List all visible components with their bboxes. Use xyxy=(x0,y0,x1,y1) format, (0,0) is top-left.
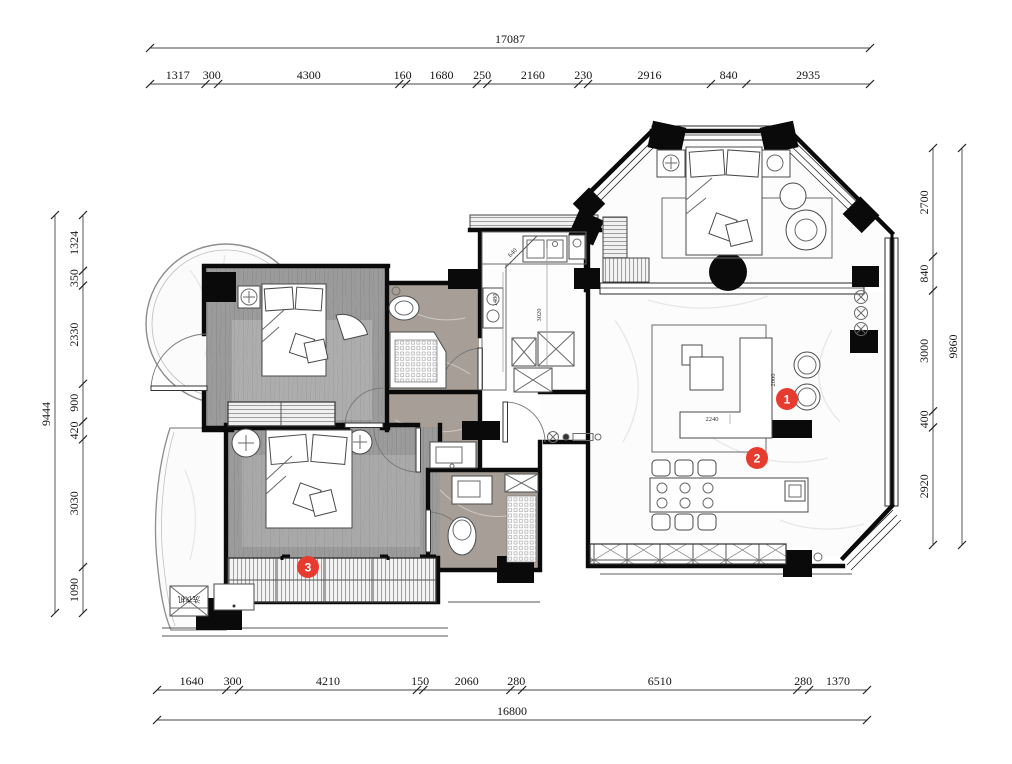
dim-counter: 1480 xyxy=(492,294,499,307)
powder-room-fixtures xyxy=(430,442,476,468)
dimension-label: 420 xyxy=(67,422,81,440)
dimension-label: 3030 xyxy=(67,491,81,515)
dimension-label: 2700 xyxy=(917,190,931,214)
dimension-label: 2916 xyxy=(638,68,662,82)
dimension-label: 2330 xyxy=(67,323,81,347)
dimension-label: 300 xyxy=(224,674,242,688)
dimension-label: 160 xyxy=(394,68,412,82)
washer-label: 洗衣机 xyxy=(177,595,200,605)
dim-sofa-depth: 2000 xyxy=(770,374,777,387)
dimension-label: 1370 xyxy=(826,674,850,688)
floor-plan-drawing: 洗衣机 2240 2000 3020 1480 640 1 2 3 131730… xyxy=(0,0,1012,764)
dimension-label: 2935 xyxy=(796,68,820,82)
floor-plan-page: 洗衣机 2240 2000 3020 1480 640 1 2 3 131730… xyxy=(0,0,1012,764)
dimension-label: 230 xyxy=(574,68,592,82)
dimension-label: 17087 xyxy=(495,32,525,46)
dimension-label: 280 xyxy=(507,674,525,688)
dimension-label: 300 xyxy=(203,68,221,82)
dimension-label: 3000 xyxy=(917,339,931,363)
dimension-label: 1680 xyxy=(429,68,453,82)
dimension-label: 2060 xyxy=(455,674,479,688)
dimension-label: 2920 xyxy=(917,474,931,498)
dimension-label: 250 xyxy=(473,68,491,82)
plan-marker-2[interactable]: 2 xyxy=(746,447,768,469)
svg-text:3: 3 xyxy=(305,561,312,575)
dimension-label: 400 xyxy=(917,410,931,428)
dimension-label: 9444 xyxy=(39,402,53,426)
svg-text:1: 1 xyxy=(784,393,791,407)
dim-kitchen-run: 3020 xyxy=(536,309,543,322)
dimension-label: 6510 xyxy=(648,674,672,688)
dimension-label: 9860 xyxy=(946,335,960,359)
dimension-label: 900 xyxy=(67,394,81,412)
dimension-label: 2160 xyxy=(521,68,545,82)
plan-marker-3[interactable]: 3 xyxy=(297,556,319,578)
dimension-label: 350 xyxy=(67,269,81,287)
dimension-label: 150 xyxy=(411,674,429,688)
dimension-label: 1324 xyxy=(67,231,81,255)
dimension-label: 1640 xyxy=(180,674,204,688)
dimension-label: 16800 xyxy=(497,704,527,718)
dimension-label: 840 xyxy=(917,265,931,283)
dim-sofa-width: 2240 xyxy=(706,416,719,423)
dimension-label: 4210 xyxy=(316,674,340,688)
dimension-label: 4300 xyxy=(297,68,321,82)
svg-text:2: 2 xyxy=(754,452,761,466)
dimension-label: 1317 xyxy=(166,68,190,82)
dimension-label: 1090 xyxy=(67,578,81,602)
plan-marker-1[interactable]: 1 xyxy=(776,388,798,410)
dimension-label: 840 xyxy=(720,68,738,82)
dimension-label: 280 xyxy=(794,674,812,688)
